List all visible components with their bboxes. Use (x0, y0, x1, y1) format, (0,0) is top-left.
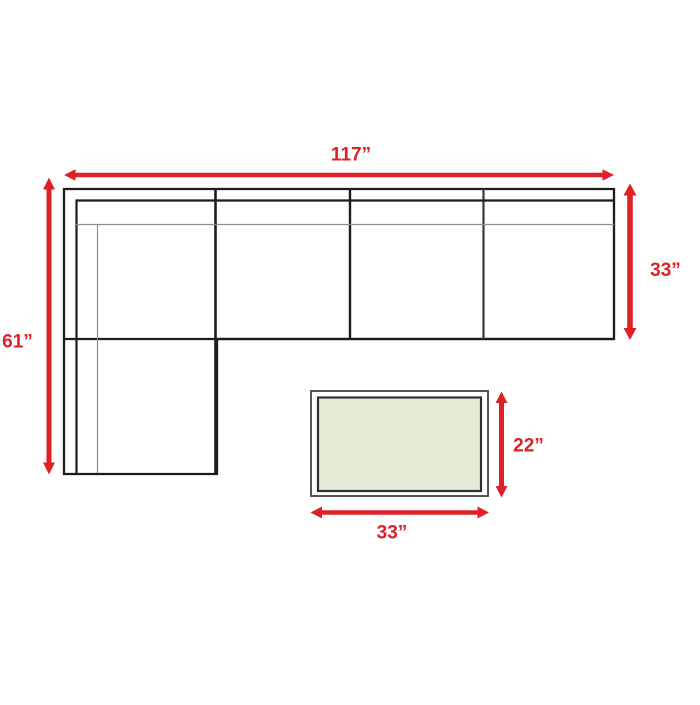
svg-text:22”: 22” (513, 436, 544, 457)
svg-text:117”: 117” (331, 145, 371, 166)
svg-text:33”: 33” (377, 523, 408, 544)
svg-text:33”: 33” (650, 260, 681, 281)
svg-text:61”: 61” (2, 332, 33, 353)
